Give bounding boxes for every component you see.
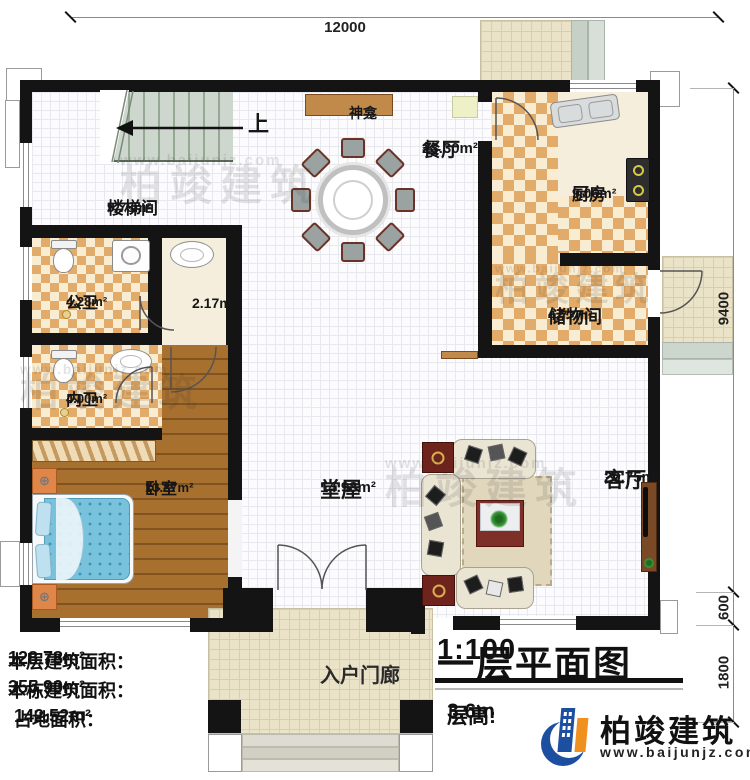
dining-chair [291,188,311,212]
entry-step [242,759,399,772]
title-underline [435,678,683,683]
dining-chair [341,138,365,158]
dining-chair [341,242,365,262]
staircase [100,92,233,162]
washbasin [170,241,214,268]
washbasin [110,349,152,374]
bedroom-door-opening [228,500,242,577]
sofa-cushion [486,580,504,598]
sofa-cushion [427,540,444,557]
entry-step [242,734,399,747]
dimension-right-step: 600 [716,588,733,628]
washing-machine [112,240,150,272]
storage-door-opening [648,270,660,317]
wardrobe [32,440,156,462]
window [60,618,190,632]
window-sill [5,100,20,168]
dining-chair [395,188,415,212]
side-porch-step [662,342,733,359]
window [20,247,32,300]
sofa-cushion [488,444,506,462]
wall-bath-divider [148,238,162,333]
end-table [422,442,454,473]
wall-bath-north [20,225,242,238]
brand-url: www.baijunjz.com [600,744,750,760]
dimension-right-porch: 1800 [716,648,733,698]
console-shelf [441,351,478,359]
patio-step [588,20,605,81]
toilet [50,240,78,274]
wall-kitchen-storage [560,253,648,266]
tv [643,487,648,537]
window [20,357,32,408]
window [20,543,32,585]
wall-north [20,80,660,92]
porch-column [400,700,433,733]
corner-cabinet [452,96,478,118]
title-block: 一层平面图 1:100 [437,634,682,678]
extension-line [690,88,734,89]
dimension-width: 12000 [305,19,385,36]
wall-bath-mid [20,333,162,345]
rear-patio [480,20,572,81]
nightstand: ⊕ [32,468,57,494]
dining-table-center [333,180,373,220]
entry-step [242,747,399,759]
entry-step-side [399,734,433,772]
window-sill [660,600,678,634]
wall-innerbath-south [20,428,162,440]
entry-pier [223,588,273,632]
storage-floor [492,253,648,346]
entry-step-side [208,734,242,772]
kitchen-floor-tiles [558,196,648,253]
window [500,616,576,630]
wall-storage-south [478,345,660,358]
kitchen-floor-tiles [492,92,558,253]
entry-pier [366,588,411,632]
patio-step [571,20,588,81]
dimension-line-top [70,17,718,18]
sofa-cushion [507,576,524,593]
corridor-floor [162,345,228,440]
wall-kitchen-west [478,92,492,102]
wall-bedroom-east [228,345,242,500]
window [570,80,636,92]
window [20,143,32,207]
wall-kitchen-west [478,141,492,358]
title-underline-thin [435,688,683,690]
window-sill [0,541,20,587]
toilet [50,350,78,384]
nightstand: ⊕ [32,584,57,610]
floor-plan-canvas: ⊕ ⊕ [0,0,750,780]
stove [626,158,650,202]
plan-scale: 1:100 [437,634,516,667]
end-table [422,575,455,606]
porch-column [208,700,241,733]
brand-logo [538,700,596,768]
pillow [35,544,52,579]
wall-washroom-east [226,238,242,345]
plant [490,510,508,528]
pillow [35,502,52,537]
plant [644,558,654,568]
brand-logo-icon [538,700,596,768]
dimension-right-main: 9400 [716,279,733,339]
side-porch-step [662,359,733,375]
